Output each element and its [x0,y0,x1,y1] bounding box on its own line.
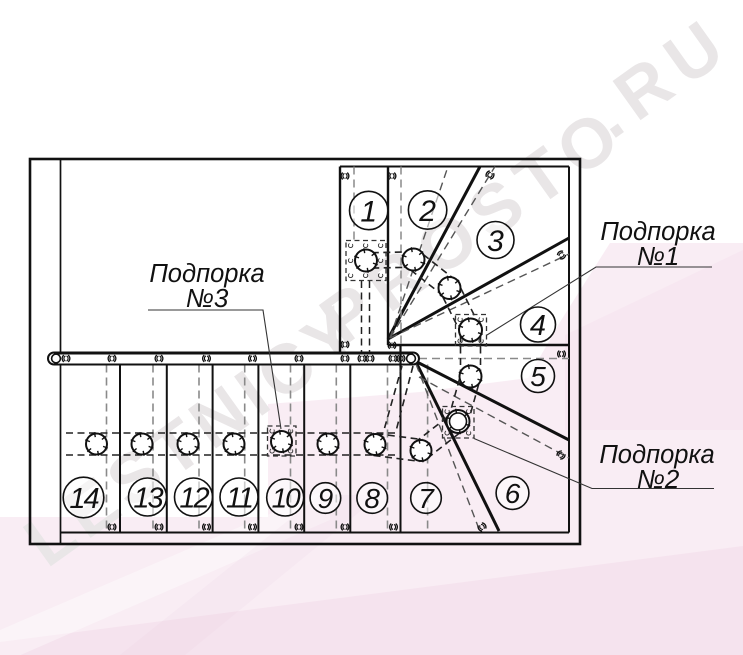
svg-text:12: 12 [179,482,209,514]
svg-text:2: 2 [418,195,436,228]
svg-text:№3: №3 [186,283,229,313]
svg-text:1: 1 [360,195,377,228]
svg-text:9: 9 [318,483,334,514]
svg-text:7: 7 [418,483,435,514]
svg-text:№1: №1 [637,241,680,271]
svg-text:10: 10 [272,483,302,514]
svg-text:5: 5 [530,361,546,392]
svg-text:6: 6 [505,478,521,509]
svg-text:11: 11 [226,482,252,514]
svg-text:14: 14 [69,483,99,515]
svg-text:13: 13 [133,482,163,514]
svg-text:8: 8 [364,483,380,514]
svg-text:№2: №2 [637,464,680,494]
svg-text:4: 4 [530,310,546,342]
svg-text:3: 3 [487,225,504,258]
